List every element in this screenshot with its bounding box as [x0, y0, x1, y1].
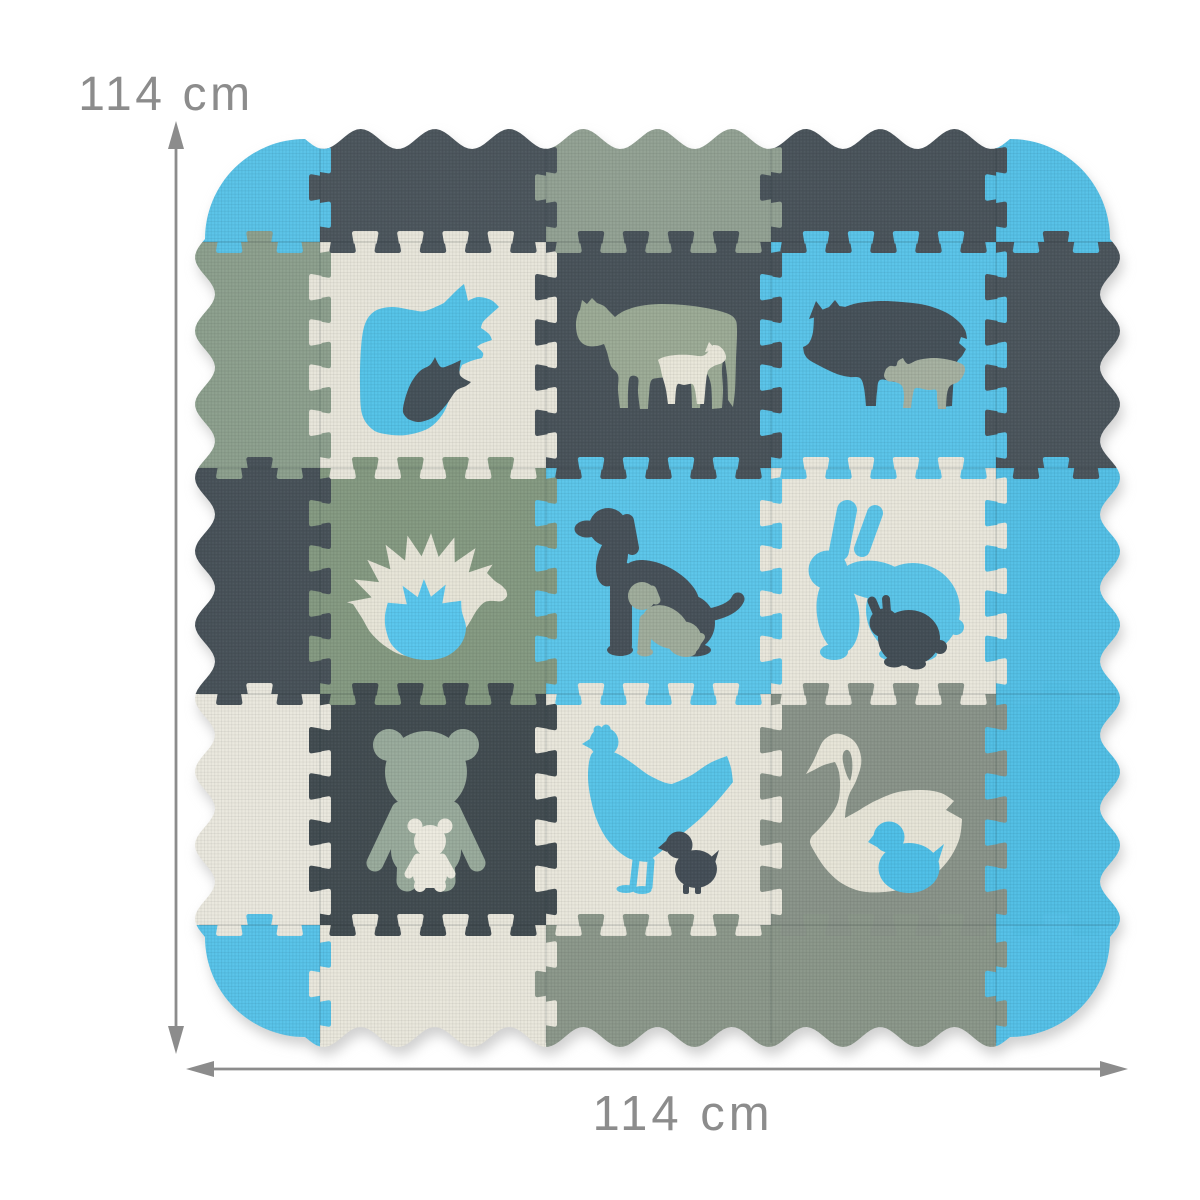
svg-text:114 cm: 114 cm	[78, 68, 253, 121]
svg-text:114 cm: 114 cm	[592, 1087, 773, 1141]
